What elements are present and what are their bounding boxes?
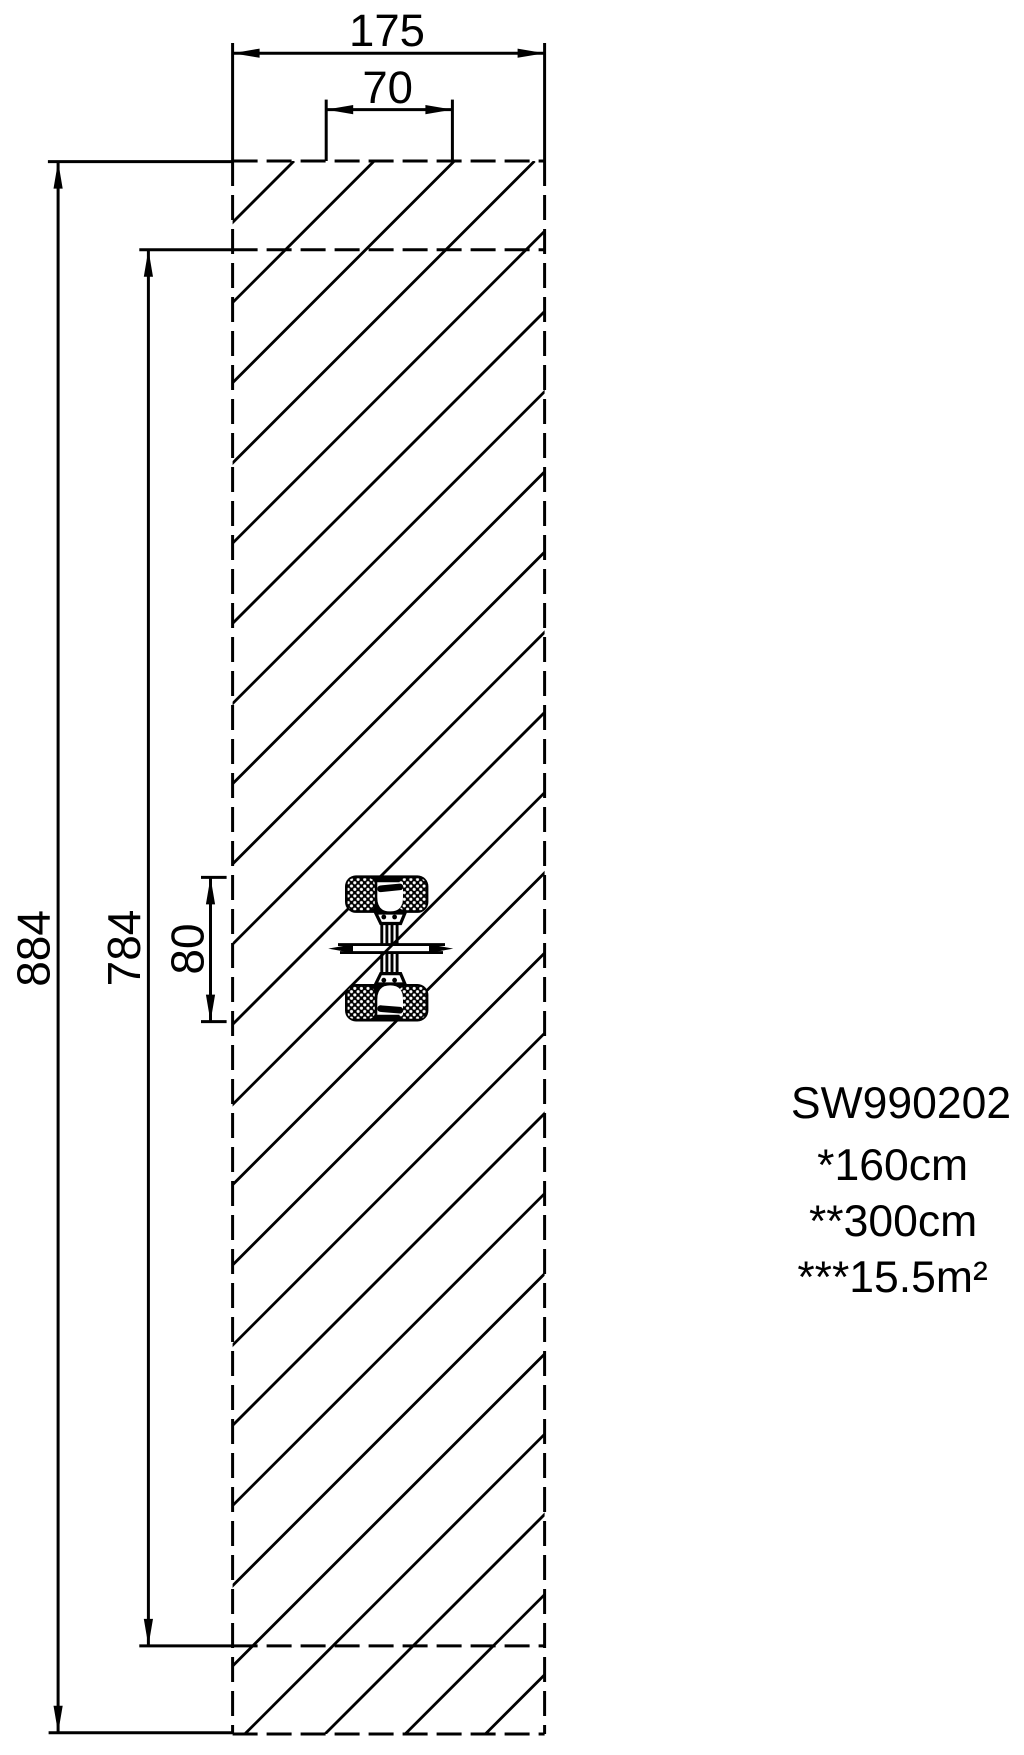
svg-text:SW990202: SW990202 (791, 1079, 1011, 1128)
svg-text:***15.5m²: ***15.5m² (797, 1253, 987, 1302)
svg-text:*160cm: *160cm (817, 1141, 968, 1190)
svg-text:**300cm: **300cm (809, 1197, 977, 1246)
svg-text:784: 784 (98, 910, 150, 987)
svg-text:70: 70 (362, 62, 413, 113)
svg-text:80: 80 (162, 923, 214, 974)
svg-text:884: 884 (7, 910, 59, 987)
svg-text:175: 175 (349, 5, 425, 56)
